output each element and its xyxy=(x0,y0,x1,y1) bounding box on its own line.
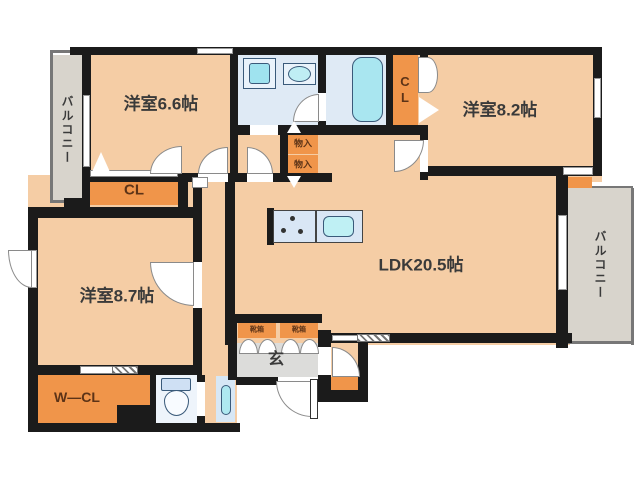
front-door-leaf xyxy=(310,379,318,419)
room-label-ldk: LDK20.5帖 xyxy=(378,257,463,274)
sliding-door-hatch xyxy=(112,366,138,374)
closet-1-label: CL xyxy=(124,183,144,198)
wall xyxy=(228,314,237,380)
kitchen-sink-icon xyxy=(323,216,354,237)
balcony-right-railing-bottom xyxy=(568,341,634,344)
window xyxy=(197,48,233,54)
storage-lower-label: 物入 xyxy=(294,161,312,170)
closet-2-label: CL xyxy=(399,74,412,106)
wall xyxy=(178,175,188,208)
storage-upper-label: 物入 xyxy=(294,140,312,149)
balcony-step xyxy=(568,177,592,188)
wall xyxy=(82,178,90,210)
balcony-right-railing xyxy=(631,188,634,345)
door-opening xyxy=(250,125,278,135)
entrance-label: 玄 xyxy=(268,352,284,368)
wall xyxy=(117,405,155,423)
wall xyxy=(233,314,322,323)
wall xyxy=(28,423,240,432)
room-label-bedroom-1: 洋室6.6帖 xyxy=(124,96,199,113)
shoebox-right-label: 靴箱 xyxy=(292,327,306,334)
vanity-sink-bowl-icon xyxy=(288,66,311,82)
wall xyxy=(386,55,393,127)
balcony-left-railing xyxy=(50,50,53,203)
window-hatch xyxy=(357,334,390,342)
door-opening xyxy=(193,262,202,308)
walk-in-closet-label: W―CL xyxy=(54,390,100,404)
closet-2-bifold xyxy=(418,57,438,93)
wall xyxy=(330,390,368,402)
door-opening xyxy=(318,347,331,375)
room-label-bedroom-3: 洋室8.7帖 xyxy=(80,288,155,305)
entrance-step xyxy=(330,377,358,390)
window xyxy=(558,215,567,290)
shoebox-left-label: 靴箱 xyxy=(250,327,264,334)
door-opening xyxy=(247,173,273,182)
wall xyxy=(236,377,278,385)
stove-burner-icon xyxy=(290,216,295,221)
wall xyxy=(28,207,38,432)
washing-machine-drum-icon xyxy=(249,63,270,84)
balcony-left-label: バルコニー xyxy=(61,95,73,165)
door-opening xyxy=(318,93,326,121)
bathtub-icon xyxy=(352,57,383,122)
hall-door-leaf xyxy=(192,177,208,188)
window xyxy=(563,167,593,175)
wall xyxy=(70,47,602,55)
wall xyxy=(28,207,200,218)
door-opening xyxy=(197,382,205,416)
floor-plan: 洋室6.6帖 洋室8.2帖 洋室8.7帖 LDK20.5帖 バルコニー バルコニ… xyxy=(0,0,640,480)
window xyxy=(594,78,601,118)
window-swing-arc xyxy=(8,250,32,288)
stove-burner-icon xyxy=(281,228,286,233)
wall xyxy=(230,47,238,182)
stove-burner-icon xyxy=(298,229,303,234)
balcony-left-railing-top xyxy=(50,50,72,53)
window xyxy=(83,95,90,167)
hall-basin-icon xyxy=(221,385,231,415)
balcony-right-label: バルコニー xyxy=(594,230,606,300)
room-label-bedroom-2: 洋室8.2帖 xyxy=(463,102,538,119)
kitchen-counter-divider xyxy=(315,211,317,242)
